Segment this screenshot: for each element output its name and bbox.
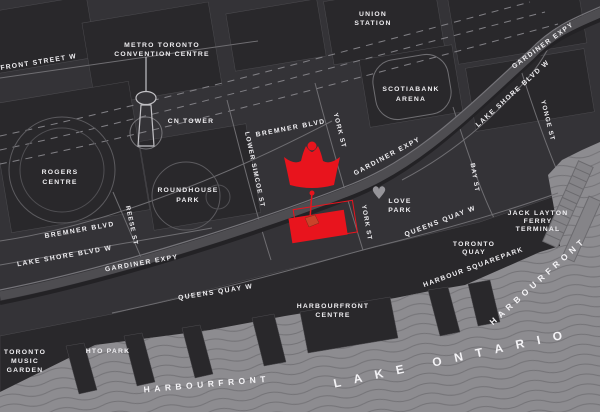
- svg-text:PARK: PARK: [176, 197, 200, 204]
- convention-centre-label: METRO TORONTO: [124, 42, 200, 49]
- rogers-centre-label: ROGERS: [42, 169, 79, 176]
- toronto-waterfront-map: FRONT STREET W METRO TORONTO CONVENTION …: [0, 0, 600, 412]
- harbourfront-centre-label: HARBOURFRONT: [297, 303, 370, 310]
- svg-text:STATION: STATION: [354, 20, 391, 27]
- svg-text:GARDEN: GARDEN: [7, 367, 44, 374]
- svg-text:QUAY: QUAY: [462, 249, 486, 256]
- svg-text:FERRY: FERRY: [524, 218, 553, 225]
- svg-text:TERMINAL: TERMINAL: [516, 226, 561, 233]
- jack-layton-label: JACK LAYTON: [508, 210, 569, 217]
- svg-text:ARENA: ARENA: [396, 96, 426, 103]
- scotiabank-arena-label: SCOTIABANK: [382, 86, 439, 93]
- love-park-label: LOVE: [388, 198, 411, 205]
- hto-park-label: HTO PARK: [86, 348, 130, 355]
- union-station-label: UNION: [359, 11, 387, 18]
- toronto-quay-label: TORONTO: [453, 241, 495, 248]
- svg-text:CENTRE: CENTRE: [315, 312, 350, 319]
- svg-text:CONVENTION CENTRE: CONVENTION CENTRE: [114, 51, 210, 58]
- cn-tower-label: CN TOWER: [168, 118, 214, 125]
- svg-text:CENTRE: CENTRE: [42, 179, 77, 186]
- music-garden-label: TORONTO: [4, 349, 46, 356]
- svg-text:MUSIC: MUSIC: [11, 358, 39, 365]
- map-canvas: FRONT STREET W METRO TORONTO CONVENTION …: [0, 0, 600, 412]
- svg-text:PARK: PARK: [388, 207, 412, 214]
- roundhouse-park-label: ROUNDHOUSE: [157, 187, 218, 194]
